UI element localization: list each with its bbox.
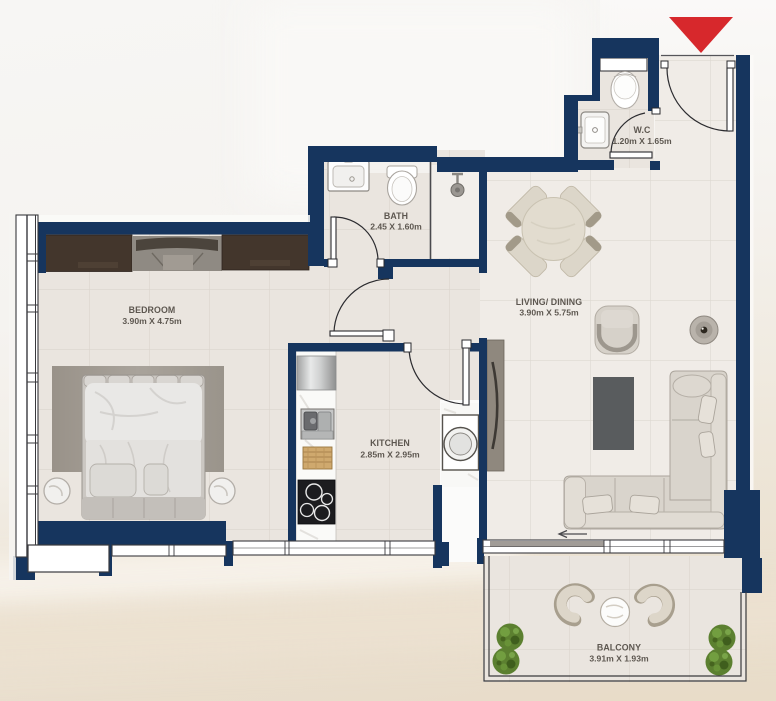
svg-text:2.45 X 1.60m: 2.45 X 1.60m <box>370 222 422 232</box>
svg-text:3.90m X 4.75m: 3.90m X 4.75m <box>122 316 182 326</box>
svg-text:BALCONY: BALCONY <box>597 643 641 653</box>
svg-text:3.90m X 5.75m: 3.90m X 5.75m <box>519 308 579 318</box>
svg-text:1.20m X 1.65m: 1.20m X 1.65m <box>612 136 672 146</box>
svg-text:3.91m X 1.93m: 3.91m X 1.93m <box>589 654 649 664</box>
svg-text:LIVING/ DINING: LIVING/ DINING <box>516 297 582 307</box>
svg-text:2.85m X 2.95m: 2.85m X 2.95m <box>360 450 420 460</box>
svg-text:BEDROOM: BEDROOM <box>129 305 176 315</box>
svg-text:W.C: W.C <box>634 125 651 135</box>
svg-text:BATH: BATH <box>384 211 408 221</box>
svg-text:KITCHEN: KITCHEN <box>370 438 410 448</box>
